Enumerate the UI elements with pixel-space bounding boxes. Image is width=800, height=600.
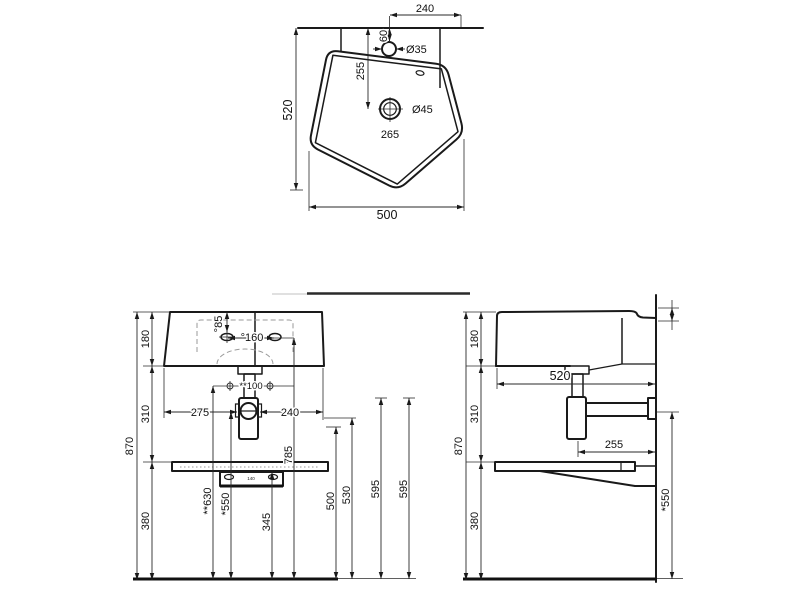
- shelf-front: [172, 462, 328, 471]
- bracket-slot-left: [225, 475, 234, 480]
- wall-flange: [648, 398, 656, 419]
- front-view: 180 310 380 870 °85 °160 **100 275 240 1…: [124, 312, 416, 580]
- dim-380-front-label: 380: [140, 512, 152, 530]
- dim-630-label: **630: [202, 488, 214, 515]
- dim-595a-label: 595: [370, 480, 382, 498]
- trap-bottle-side: [567, 397, 586, 439]
- dim-550-side-label: *550: [660, 489, 672, 512]
- dim-870-front-label: 870: [124, 437, 136, 455]
- dim-240-top-label: 240: [416, 3, 434, 15]
- top-view: 240 60 Ø35 255 Ø45 265 520 500: [281, 3, 483, 222]
- overflow-hole: [416, 70, 425, 76]
- dim-785-label: 785: [283, 446, 295, 464]
- dim-500-top-label: 500: [377, 208, 398, 222]
- dim-255-label: 255: [355, 62, 367, 80]
- dim-500-front-label: 500: [325, 492, 337, 510]
- basin-inner-rim: [315, 55, 458, 184]
- dim-310-side-label: 310: [469, 405, 481, 423]
- dim-275-label: 275: [191, 407, 209, 419]
- dim-160-label: °160: [241, 332, 264, 344]
- side-view: 180 310 380 870 520 255 *550: [453, 295, 683, 582]
- basin-side-outline: [496, 311, 656, 366]
- dim-520-top-label: 520: [281, 100, 295, 121]
- dim-310-front-label: 310: [140, 405, 152, 423]
- dim-100-label: **100: [239, 381, 262, 392]
- dim-140-bracket-label: 140: [247, 476, 255, 481]
- dim-265-label: 265: [381, 129, 399, 141]
- faucet-diameter-label: Ø35: [406, 44, 427, 56]
- dim-520-side-label: 520: [550, 369, 571, 383]
- dim-240-front-label: 240: [281, 407, 299, 419]
- dim-255-side-label: 255: [605, 439, 623, 451]
- dim-85-label: °85: [213, 316, 225, 333]
- dim-530-label: 530: [341, 486, 353, 504]
- drain-diameter-label: Ø45: [412, 104, 433, 116]
- dim-345-label: 345: [261, 513, 273, 531]
- second-hole-front: [269, 334, 281, 341]
- dim-60-label: 60: [378, 30, 390, 42]
- dim-550-front-label: *550: [220, 493, 232, 516]
- dim-380-side-label: 380: [469, 512, 481, 530]
- bracket-slot-right: [269, 475, 278, 480]
- drain-flange: [238, 366, 262, 374]
- section-divider-line: [272, 294, 470, 295]
- technical-drawing-page: 240 60 Ø35 255 Ø45 265 520 500: [0, 0, 800, 600]
- outlet-pipe: [586, 403, 648, 416]
- dim-595b-label: 595: [398, 480, 410, 498]
- shelf-side: [495, 462, 635, 471]
- drain-recess-hidden: [217, 349, 273, 364]
- washbasin-technical-drawing: 240 60 Ø35 255 Ø45 265 520 500: [0, 0, 800, 600]
- tailpipe-side: [572, 374, 583, 397]
- dim-180-side-label: 180: [469, 330, 481, 348]
- faucet-hole: [382, 42, 396, 56]
- dim-870-side-label: 870: [453, 437, 465, 455]
- dim-180-front-label: 180: [140, 330, 152, 348]
- shelf-bracket-side: [540, 471, 635, 486]
